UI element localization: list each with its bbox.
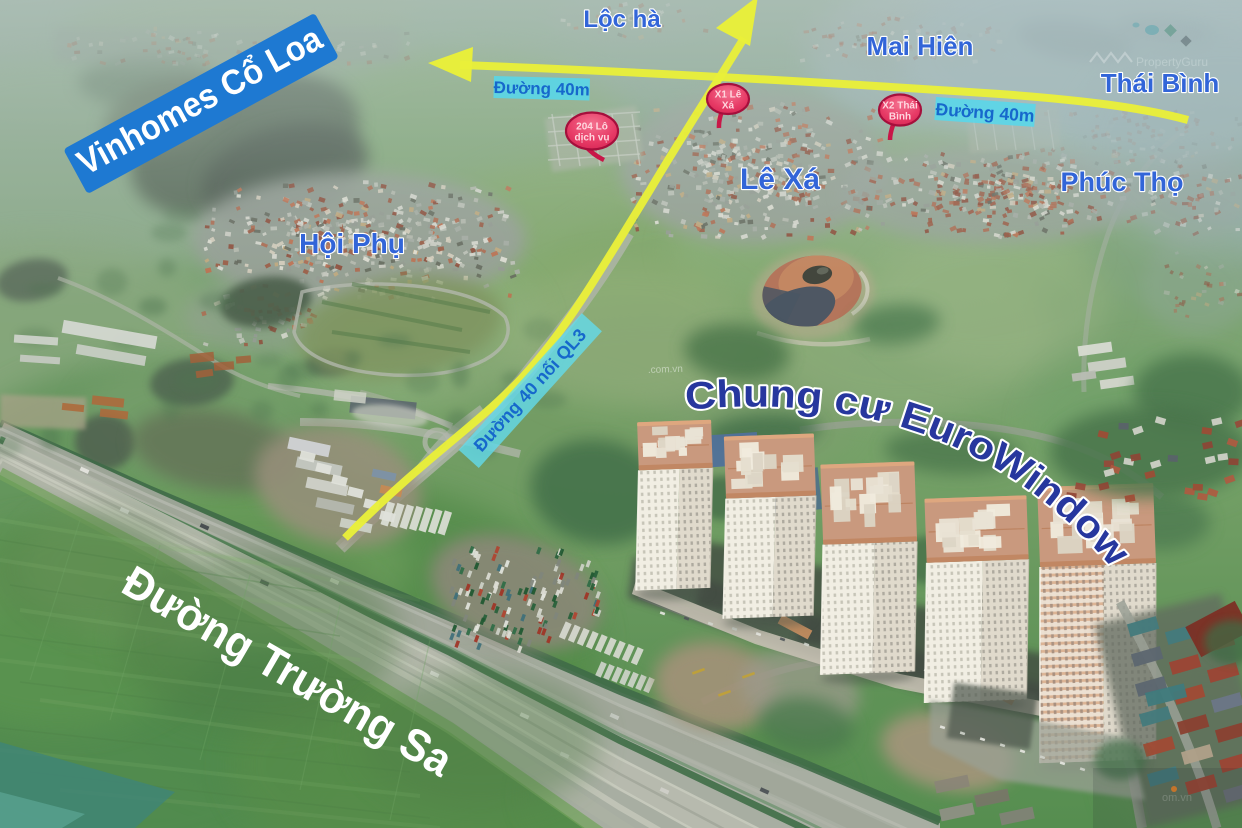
svg-text:Xá: Xá — [722, 101, 735, 112]
svg-text:Mai Hiên: Mai Hiên — [867, 31, 974, 61]
svg-text:.com.vn: .com.vn — [648, 364, 683, 376]
svg-text:Hội Phụ: Hội Phụ — [299, 228, 405, 259]
svg-text:Thái Bình: Thái Bình — [1101, 68, 1219, 98]
svg-text:om.vn: om.vn — [1162, 792, 1192, 804]
svg-text:PropertyGuru: PropertyGuru — [1136, 55, 1208, 69]
svg-text:Phúc Thọ: Phúc Thọ — [1061, 167, 1184, 197]
svg-text:204 Lô: 204 Lô — [576, 122, 608, 133]
svg-text:X2 Thái: X2 Thái — [882, 101, 918, 112]
svg-text:Bình: Bình — [889, 112, 911, 123]
svg-text:X1 Lê: X1 Lê — [715, 90, 742, 101]
svg-text:Lê Xá: Lê Xá — [740, 163, 820, 196]
svg-text:dịch vụ: dịch vụ — [574, 133, 609, 144]
svg-text:Lộc hà: Lộc hà — [583, 6, 661, 33]
svg-text:Đường 40m: Đường 40m — [493, 78, 590, 100]
